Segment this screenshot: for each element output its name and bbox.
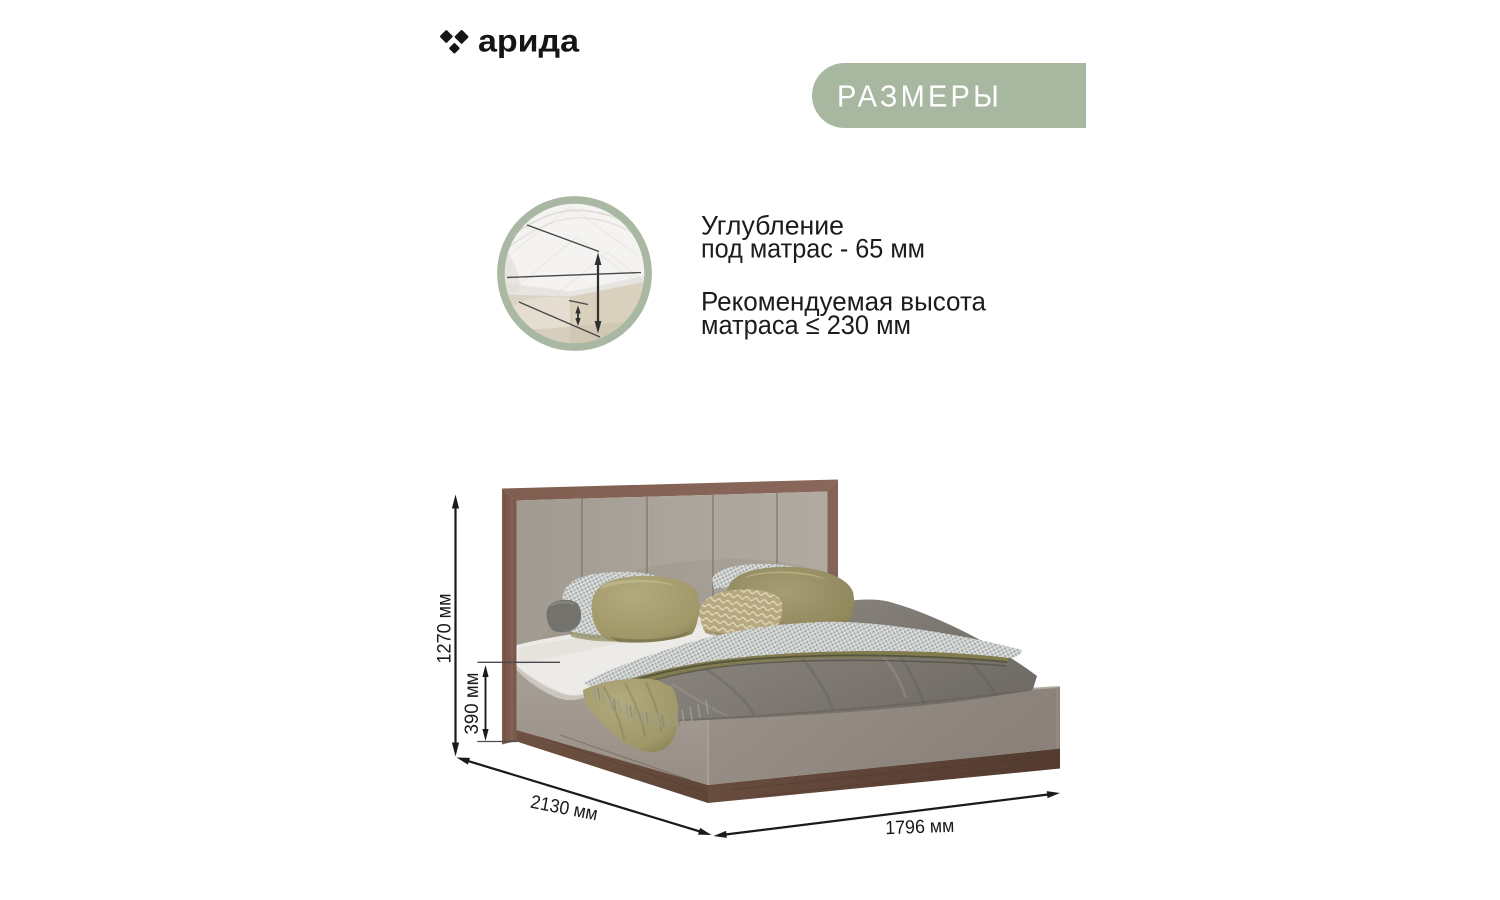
svg-text:1796 мм: 1796 мм [885,816,955,839]
svg-text:матраса ≤ 230 мм: матраса ≤ 230 мм [701,310,911,340]
svg-text:РАЗМЕРЫ: РАЗМЕРЫ [837,80,1002,114]
svg-text:1270 мм: 1270 мм [435,594,456,664]
svg-text:под матрас - 65 мм: под матрас - 65 мм [701,234,925,264]
svg-text:арида: арида [478,23,580,59]
svg-text:390 мм: 390 мм [462,673,483,735]
